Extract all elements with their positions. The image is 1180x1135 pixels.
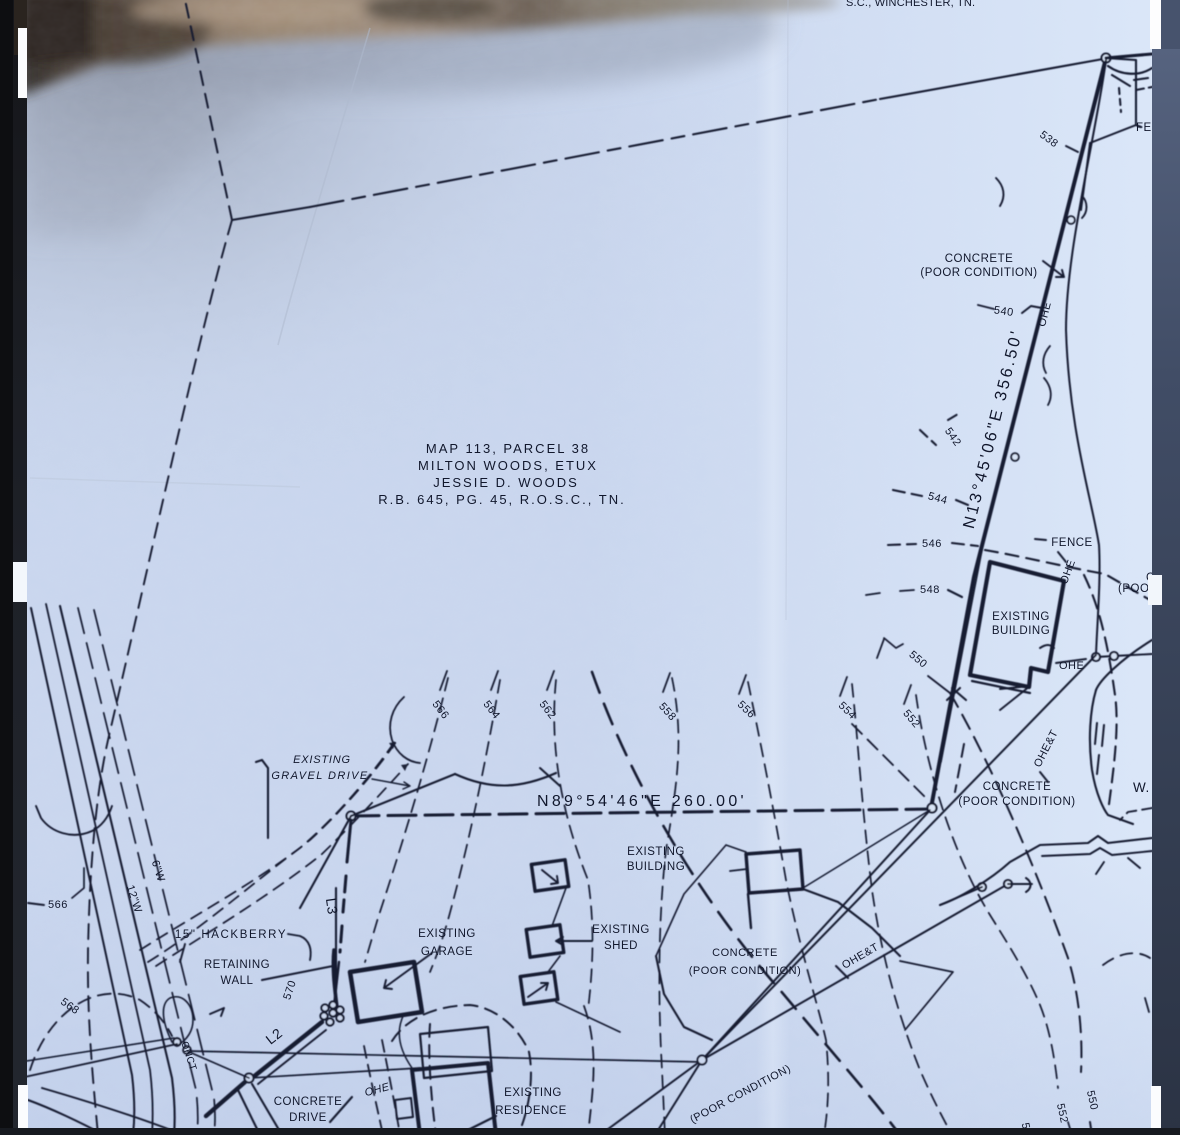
svg-text:EXISTING: EXISTING [592,924,650,936]
svg-text:N89°54'46"E 260.00': N89°54'46"E 260.00' [537,793,747,810]
svg-text:JESSIE D. WOODS: JESSIE D. WOODS [433,475,579,490]
svg-text:SHED: SHED [604,940,638,952]
svg-text:CONCRETE: CONCRETE [712,947,778,959]
svg-text:CONCRETE: CONCRETE [983,781,1052,793]
svg-text:CONCRETE: CONCRETE [945,253,1014,265]
svg-text:OHE: OHE [1059,660,1084,672]
svg-text:EXISTING: EXISTING [418,928,476,940]
svg-text:EXISTING: EXISTING [504,1087,562,1099]
svg-text:DRIVE: DRIVE [289,1112,327,1124]
svg-text:S.C., WINCHESTER, TN.: S.C., WINCHESTER, TN. [846,0,975,9]
svg-text:BUILDING: BUILDING [627,861,685,873]
svg-text:EXISTING: EXISTING [293,754,351,766]
svg-text:WALL: WALL [221,975,254,987]
svg-text:GARAGE: GARAGE [421,946,473,958]
svg-text:EXISTING: EXISTING [992,611,1050,623]
svg-text:566: 566 [48,899,68,911]
svg-text:FENCE: FENCE [1051,537,1092,549]
svg-text:MILTON WOODS, ETUX: MILTON WOODS, ETUX [418,458,598,473]
svg-text:MAP 113, PARCEL 38: MAP 113, PARCEL 38 [426,441,590,456]
svg-text:W.: W. [1133,780,1150,795]
svg-text:RETAINING: RETAINING [204,959,270,971]
svg-text:(POOR CONDITION): (POOR CONDITION) [920,267,1037,279]
svg-text:(POOR CONDITION): (POOR CONDITION) [689,965,802,977]
svg-text:L3: L3 [323,897,341,916]
svg-text:RESIDENCE: RESIDENCE [495,1105,567,1117]
svg-text:R.B. 645, PG. 45, R.O.S.C., TN: R.B. 645, PG. 45, R.O.S.C., TN. [378,492,625,507]
svg-text:548: 548 [920,584,940,596]
svg-text:EXISTING: EXISTING [627,846,685,858]
svg-text:CONCRETE: CONCRETE [274,1096,343,1108]
svg-text:546: 546 [922,538,942,550]
svg-text:15" HACKBERRY: 15" HACKBERRY [175,929,287,941]
svg-text:GRAVEL DRIVE: GRAVEL DRIVE [271,770,368,782]
svg-text:BUILDING: BUILDING [992,625,1050,637]
svg-text:(POOR CONDITION): (POOR CONDITION) [958,796,1075,808]
